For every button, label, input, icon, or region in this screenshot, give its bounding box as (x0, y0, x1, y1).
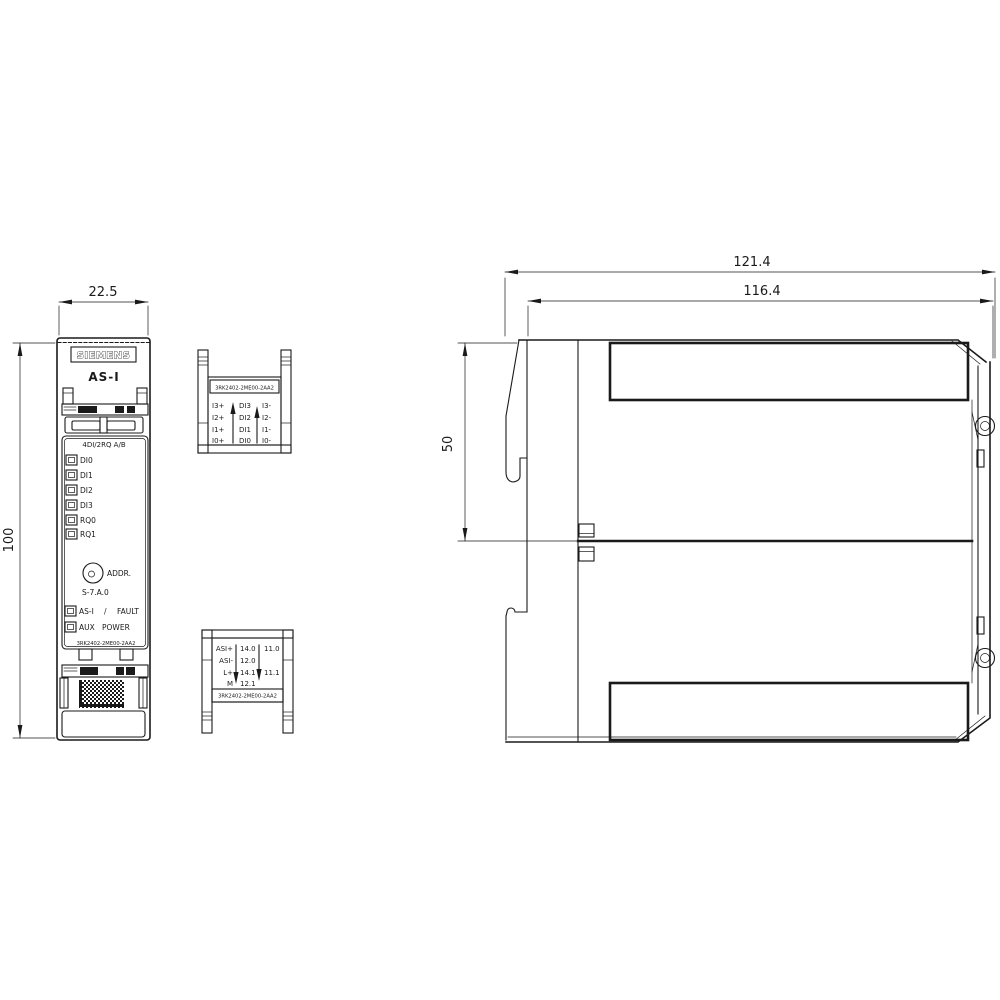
pin-label: 12.1 (240, 680, 256, 688)
pin-label: I3+ (212, 402, 225, 410)
status2-value: POWER (102, 623, 130, 632)
pin-label: DI3 (239, 402, 251, 410)
dimensional-drawing: SIEMENS AS-I 4DI/2RQ A/B (0, 0, 1000, 1000)
pin-label: DI1 (239, 426, 251, 434)
addr-range-label: S-7.A.0 (82, 588, 109, 597)
status2-name: AUX (79, 623, 95, 632)
pin-label: 11.1 (264, 669, 280, 677)
led-label: DI1 (80, 471, 93, 480)
pin-label: DI0 (239, 437, 251, 445)
led-label: RQ1 (80, 530, 96, 539)
pin-label: L+ (223, 669, 233, 677)
pin-label: 14.1 (240, 669, 256, 677)
dim-front-height-label: 100 (2, 528, 17, 553)
pin-label: 12.0 (240, 657, 256, 665)
dim-side-body-label: 116.4 (743, 284, 780, 299)
bottom-terminal-part-number: 3RK2402-2ME00-2AA2 (218, 694, 277, 700)
pin-label: I2+ (212, 414, 225, 422)
status1-name: AS-I (79, 607, 94, 616)
addr-label: ADDR. (107, 569, 131, 578)
pin-label: 14.0 (240, 645, 256, 653)
pin-label: I1+ (212, 426, 225, 434)
pin-label: I3- (262, 402, 272, 410)
top-terminal-part-number: 3RK2402-2ME00-2AA2 (215, 386, 274, 392)
drawing-svg: SIEMENS AS-I 4DI/2RQ A/B (0, 0, 1000, 1000)
led-label: RQ0 (80, 516, 96, 525)
module-type-label: 4DI/2RQ A/B (82, 441, 125, 449)
pin-label: I2- (262, 414, 272, 422)
pin-label: I0- (262, 437, 272, 445)
pin-label: 11.0 (264, 645, 280, 653)
dim-front-width-label: 22.5 (89, 285, 118, 300)
dim-side-upper-label: 50 (441, 436, 456, 453)
pin-label: ASI+ (216, 645, 233, 653)
led-label: DI3 (80, 501, 93, 510)
data-matrix-code (79, 680, 124, 708)
pin-label: ASI- (219, 657, 233, 665)
dim-side-overall-label: 121.4 (733, 255, 770, 270)
product-family-label: AS-I (88, 370, 119, 384)
status1-value: FAULT (117, 607, 139, 616)
pin-label: DI2 (239, 414, 251, 422)
pin-label: I0+ (212, 437, 225, 445)
pin-label: M (227, 680, 233, 688)
led-label: DI2 (80, 486, 93, 495)
led-label: DI0 (80, 456, 93, 465)
siemens-logo: SIEMENS (77, 351, 131, 362)
front-part-number: 3RK2402-2ME00-2AA2 (77, 641, 136, 647)
pin-label: I1- (262, 426, 272, 434)
